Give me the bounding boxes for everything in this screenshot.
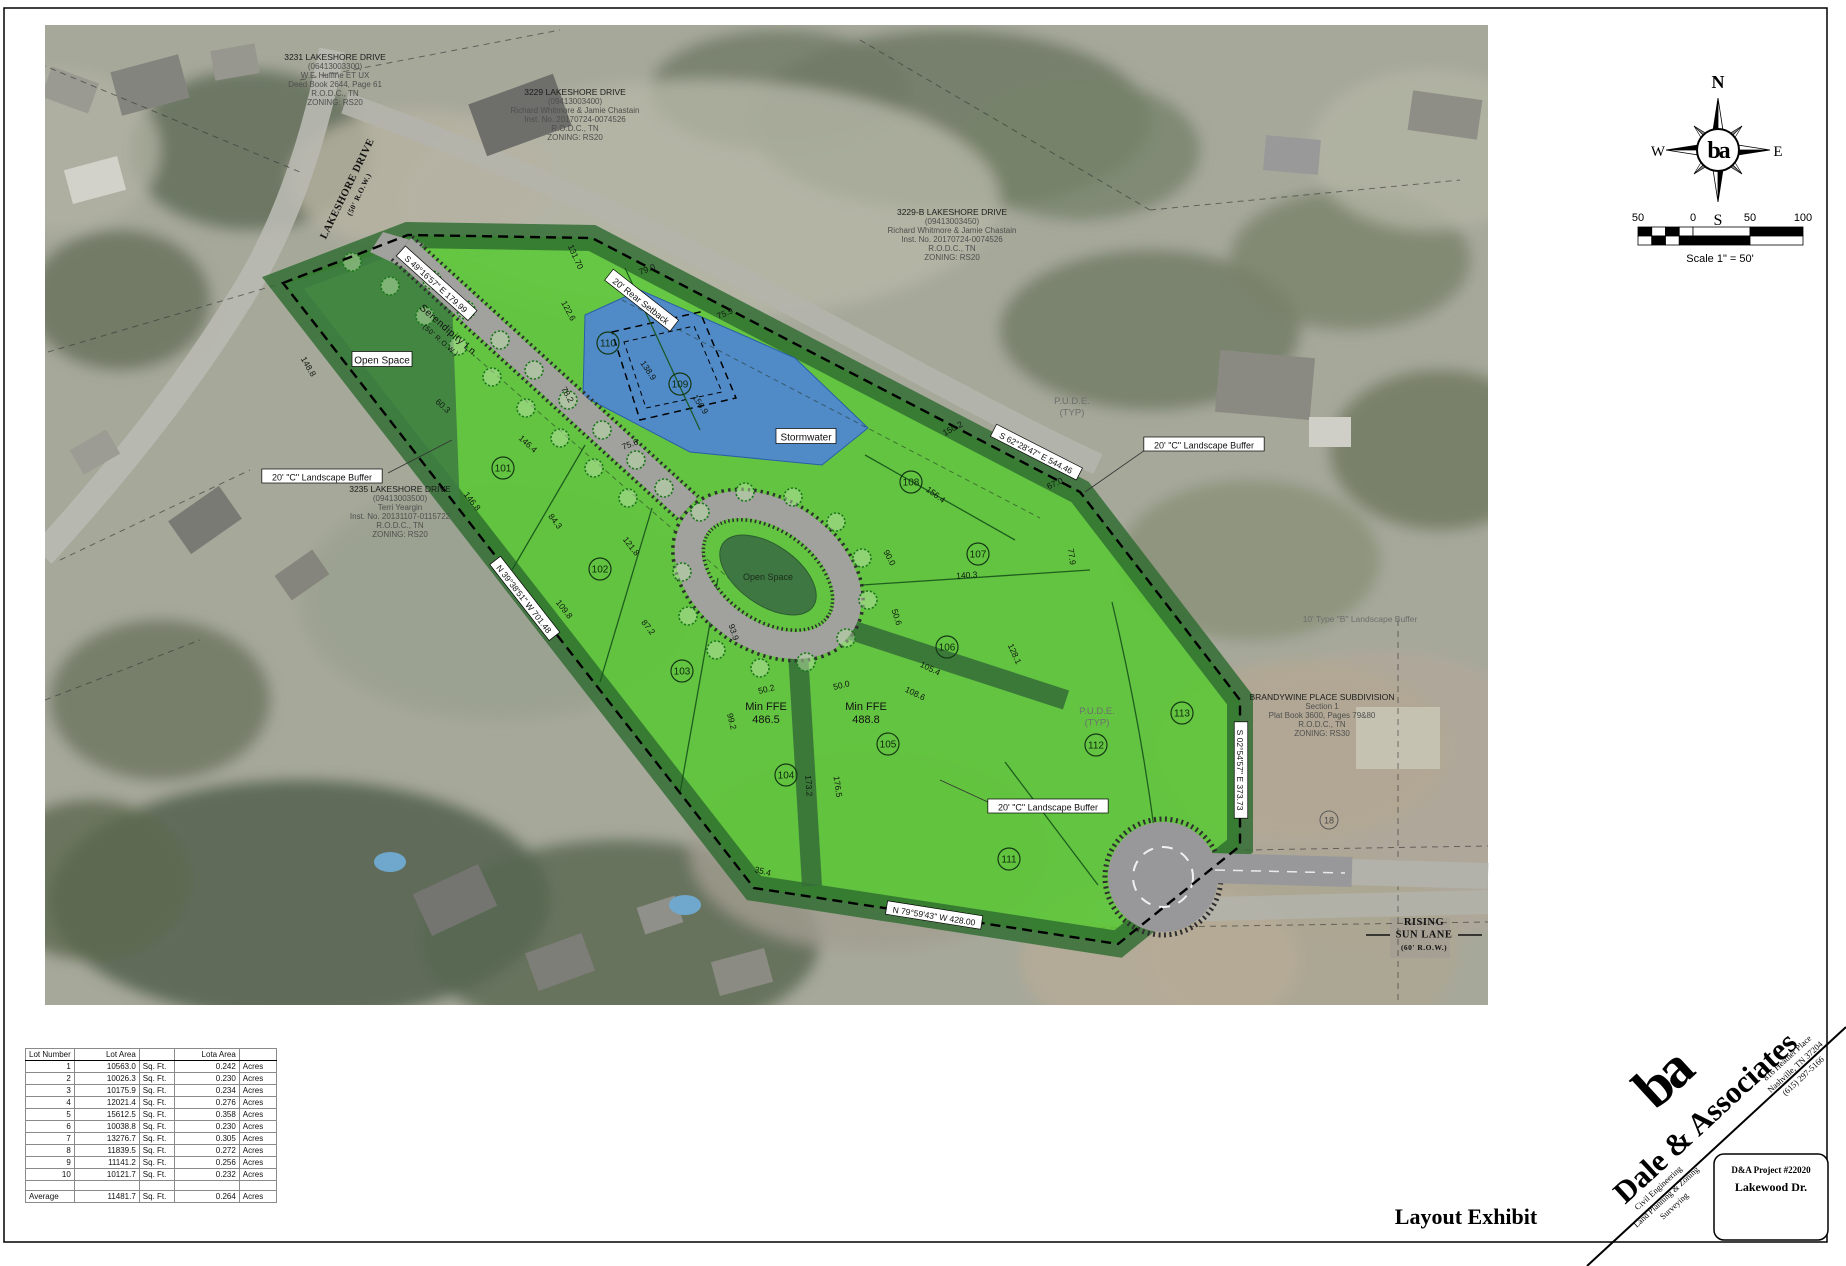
neighbor-parcel-label: ZONING: RS20 (547, 133, 603, 142)
table-cell: 0.230 (174, 1121, 239, 1133)
table-cell: Acres (239, 1085, 276, 1097)
table-cell: 8 (26, 1145, 75, 1157)
tree-icon (673, 563, 691, 581)
table-cell (239, 1181, 276, 1191)
table-header-cell: Lota Area (174, 1049, 239, 1061)
table-cell: 12021.4 (74, 1097, 139, 1109)
lot-number-label: 102 (592, 565, 609, 576)
neighbor-parcel-label: R.O.D.C., TN (311, 89, 359, 98)
tree-icon (525, 361, 543, 379)
table-cell: 1 (26, 1061, 75, 1073)
table-cell: 0.276 (174, 1097, 239, 1109)
tree-icon (619, 489, 637, 507)
sheet-title: Layout Exhibit (1395, 1204, 1538, 1229)
label-box-text: Stormwater (780, 433, 832, 444)
street-label-line: (60' R.O.W.) (1401, 943, 1447, 952)
table-cell: Sq. Ft. (139, 1145, 174, 1157)
table-cell: 10175.9 (74, 1085, 139, 1097)
tree-icon (859, 591, 877, 609)
neighbor-parcel-label: R.O.D.C., TN (928, 244, 976, 253)
area-label: Stormwater (776, 429, 836, 444)
tree-icon (381, 277, 399, 295)
pool (669, 895, 701, 915)
table-cell: Sq. Ft. (139, 1061, 174, 1073)
tree-icon (827, 513, 845, 531)
dimension-label: 140.3 (956, 569, 978, 580)
lot-number-label: 104 (778, 771, 795, 782)
table-cell: Acres (239, 1157, 276, 1169)
lot-area-table-wrap: Lot NumberLot AreaLota Area110563.0Sq. F… (25, 1048, 277, 1203)
table-cell: 11839.5 (74, 1145, 139, 1157)
aerial-texture-blob (50, 620, 270, 780)
area-label: Open Space (743, 572, 793, 582)
table-cell: Acres (239, 1073, 276, 1085)
lot-number-label: 112 (1088, 741, 1104, 752)
buffer-label: 20' "C" Landscape Buffer (1144, 437, 1264, 451)
table-cell: 0.272 (174, 1145, 239, 1157)
table-cell: 0.358 (174, 1109, 239, 1121)
tree-icon (517, 399, 535, 417)
table-cell: 0.242 (174, 1061, 239, 1073)
table-cell: Sq. Ft. (139, 1109, 174, 1121)
title-block: Layout Exhibit ba Dale & Associates 816 … (1395, 1025, 1846, 1266)
table-cell: 3 (26, 1085, 75, 1097)
table-cell: Sq. Ft. (139, 1085, 174, 1097)
neighbor-parcel-label: 3229-B LAKESHORE DRIVE (897, 207, 1007, 217)
tree-icon (491, 331, 509, 349)
table-cell: Sq. Ft. (139, 1121, 174, 1133)
table-cell: Sq. Ft. (139, 1157, 174, 1169)
compass-south-label: S (1714, 212, 1723, 229)
neighbor-parcel-label: Plat Book 3600, Pages 79&80 (1269, 711, 1376, 720)
tree-icon (707, 641, 725, 659)
buffer-label: 20' "C" Landscape Buffer (988, 799, 1108, 813)
table-cell: 7 (26, 1133, 75, 1145)
table-cell: 6 (26, 1121, 75, 1133)
table-cell: Acres (239, 1169, 276, 1181)
table-cell: 0.264 (174, 1191, 239, 1203)
lot-area-table: Lot NumberLot AreaLota Area110563.0Sq. F… (25, 1048, 277, 1203)
tree-icon (679, 607, 697, 625)
area-label: Open Space (352, 352, 412, 367)
area-label: 486.5 (752, 714, 780, 726)
neighbor-parcel-label: (09413003400) (548, 97, 603, 106)
table-cell: 5 (26, 1109, 75, 1121)
lot-number-label: 109 (672, 380, 689, 391)
compass-logo: ba (1707, 138, 1730, 164)
pool (374, 852, 406, 872)
label-box-text: Open Space (354, 356, 410, 367)
area-label: 488.8 (852, 714, 880, 726)
table-cell: 0.232 (174, 1169, 239, 1181)
house-roof (1309, 417, 1351, 447)
table-cell: 4 (26, 1097, 75, 1109)
table-cell (174, 1181, 239, 1191)
tree-icon (551, 429, 569, 447)
neighbor-parcel-label: Deed Book 2644, Page 61 (288, 80, 382, 89)
layout-exhibit-sheet: 1011021031041051061071081091101111121137… (0, 0, 1846, 1266)
lot-number-label: 111 (1001, 855, 1017, 866)
label-box-text: S 02°54'57" E 373.73 (1235, 730, 1245, 811)
neighbor-parcel-label: ZONING: RS20 (372, 530, 428, 539)
table-cell: Sq. Ft. (139, 1097, 174, 1109)
neighbor-parcel-label: 3231 LAKESHORE DRIVE (284, 52, 386, 62)
table-cell: Sq. Ft. (139, 1191, 174, 1203)
tree-icon (655, 479, 673, 497)
house-roof (1215, 350, 1315, 420)
table-cell: Sq. Ft. (139, 1169, 174, 1181)
table-cell: Acres (239, 1121, 276, 1133)
table-cell (26, 1181, 75, 1191)
svg-text:18: 18 (1324, 816, 1334, 826)
label-box-text: 20' "C" Landscape Buffer (272, 472, 372, 482)
label-box-text: 20' "C" Landscape Buffer (1154, 440, 1254, 450)
table-cell: 10563.0 (74, 1061, 139, 1073)
table-cell: 0.256 (174, 1157, 239, 1169)
scale-tick-100: 100 (1794, 212, 1812, 224)
compass-east-label: E (1773, 144, 1782, 160)
lot-number-label: 105 (880, 740, 897, 751)
neighbor-parcel-label: Terri Yeargin (378, 503, 422, 512)
dimension-label: 173.2 (803, 775, 814, 797)
neighbor-parcel-label: ZONING: RS30 (1294, 729, 1350, 738)
neighbor-parcel-label: 3229 LAKESHORE DRIVE (524, 87, 626, 97)
tree-icon (627, 451, 645, 469)
neighbor-parcel-label: BRANDYWINE PLACE SUBDIVISION (1249, 692, 1394, 702)
compass-rose: ba N S W E (1651, 72, 1783, 229)
label-box-text: 20' "C" Landscape Buffer (998, 802, 1098, 812)
site-plan-drawing: 1011021031041051061071081091101111121137… (0, 0, 1846, 1266)
table-cell: Acres (239, 1133, 276, 1145)
neighbor-parcel-label: (06413003300) (308, 62, 363, 71)
table-cell (74, 1181, 139, 1191)
street-label: SUN LANE (1396, 930, 1453, 941)
area-label: P.U.D.E. (1054, 396, 1090, 407)
neighbor-parcel-label: W.F. Huffine ET UX (301, 71, 370, 80)
area-label: Min FFE (745, 701, 787, 713)
table-header-cell: Lot Number (26, 1049, 75, 1061)
compass-north-label: N (1712, 72, 1725, 92)
tree-icon (853, 549, 871, 567)
street-label: (60' R.O.W.) (1401, 943, 1447, 952)
table-cell: 13276.7 (74, 1133, 139, 1145)
table-header-cell: Lot Area (74, 1049, 139, 1061)
street-label: RISING (1404, 917, 1444, 928)
scale-caption: Scale 1" = 50' (1686, 253, 1753, 265)
street-label-line: RISING (1404, 917, 1444, 928)
scale-tick-50l: 50 (1632, 212, 1644, 224)
buffer-label: 20' "C" Landscape Buffer (262, 469, 382, 483)
table-cell: 10038.8 (74, 1121, 139, 1133)
area-label: P.U.D.E. (1079, 706, 1115, 717)
table-cell: 10121.7 (74, 1169, 139, 1181)
table-cell: 15612.5 (74, 1109, 139, 1121)
lot-number-label: 108 (903, 478, 920, 489)
compass-west-label: W (1651, 144, 1666, 160)
table-cell: Average (26, 1191, 75, 1203)
area-label: (TYP) (1085, 718, 1110, 729)
area-label: 10' Type "B" Landscape Buffer (1303, 614, 1418, 624)
neighbor-parcel-label: R.O.D.C., TN (1298, 720, 1346, 729)
table-cell: Sq. Ft. (139, 1073, 174, 1085)
table-cell: 9 (26, 1157, 75, 1169)
tree-icon (736, 483, 754, 501)
project-name: Lakewood Dr. (1735, 1180, 1807, 1194)
table-cell: 10026.3 (74, 1073, 139, 1085)
neighbor-parcel-label: Inst. No. 20131107-0115722 (350, 512, 451, 521)
lot-number-label: 107 (970, 550, 987, 561)
table-header-cell (139, 1049, 174, 1061)
lot-number-label: 103 (674, 667, 691, 678)
neighbor-parcel-label: Richard Whitmore & Jamie Chastain (511, 106, 640, 115)
scale-tick-0: 0 (1690, 212, 1696, 224)
house-roof (1263, 135, 1321, 175)
table-cell: 0.230 (174, 1073, 239, 1085)
tree-icon (585, 459, 603, 477)
tree-icon (593, 421, 611, 439)
neighbor-parcel-label: 3235 LAKESHORE DRIVE (349, 484, 451, 494)
table-cell: Acres (239, 1191, 276, 1203)
street-label-line: SUN LANE (1396, 930, 1453, 941)
tree-icon (784, 488, 802, 506)
table-cell: Sq. Ft. (139, 1133, 174, 1145)
neighbor-parcel-label: (09413003500) (373, 494, 428, 503)
tree-icon (751, 659, 769, 677)
neighbor-parcel-label: Richard Whitmore & Jamie Chastain (888, 226, 1017, 235)
tree-icon (797, 653, 815, 671)
neighbor-parcel-label: Inst. No. 20170724-0074526 (524, 115, 626, 124)
lot-number-label: 110 (600, 339, 616, 350)
tree-icon (691, 503, 709, 521)
table-cell: 11481.7 (74, 1191, 139, 1203)
tree-icon (837, 629, 855, 647)
bearing-label: S 02°54'57" E 373.73 (1234, 722, 1248, 818)
aerial-texture-blob (30, 230, 210, 370)
table-cell: 2 (26, 1073, 75, 1085)
neighbor-parcel-label: R.O.D.C., TN (376, 521, 424, 530)
tree-icon (483, 368, 501, 386)
neighbor-parcel-label: Section 1 (1305, 702, 1339, 711)
lot-number-label: 113 (1174, 709, 1190, 720)
table-cell: Acres (239, 1097, 276, 1109)
table-cell: 10 (26, 1169, 75, 1181)
table-cell: 0.234 (174, 1085, 239, 1097)
table-cell: Acres (239, 1061, 276, 1073)
aerial-texture-blob (1330, 370, 1550, 530)
area-label: Min FFE (845, 701, 887, 713)
neighbor-parcel-label: (09413003450) (925, 217, 980, 226)
neighbor-parcel-label: R.O.D.C., TN (551, 124, 599, 133)
tree-icon (343, 253, 361, 271)
table-header-cell (239, 1049, 276, 1061)
neighbor-parcel-label: ZONING: RS20 (924, 253, 980, 262)
scale-tick-50r: 50 (1744, 212, 1756, 224)
table-cell: 0.305 (174, 1133, 239, 1145)
table-cell: 11141.2 (74, 1157, 139, 1169)
table-cell: Acres (239, 1109, 276, 1121)
lot-number-label: 106 (939, 643, 956, 654)
table-cell (139, 1181, 174, 1191)
project-number: D&A Project #22020 (1731, 1165, 1811, 1175)
neighbor-parcel-label: ZONING: RS20 (307, 98, 363, 107)
area-label: (TYP) (1060, 408, 1085, 419)
lot-number-label: 101 (495, 464, 512, 475)
neighbor-parcel-label: Inst. No. 20170724-0074526 (901, 235, 1003, 244)
table-cell: Acres (239, 1145, 276, 1157)
